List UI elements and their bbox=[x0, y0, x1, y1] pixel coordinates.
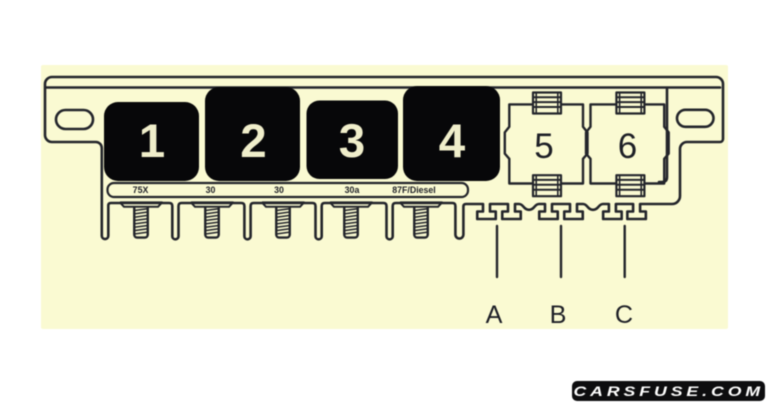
svg-text:30: 30 bbox=[206, 185, 216, 195]
svg-text:30: 30 bbox=[274, 185, 284, 195]
svg-text:75X: 75X bbox=[133, 185, 149, 195]
svg-text:C: C bbox=[615, 301, 633, 329]
svg-text:87F/Diesel: 87F/Diesel bbox=[392, 185, 436, 195]
svg-text:2: 2 bbox=[240, 115, 266, 168]
svg-text:3: 3 bbox=[339, 115, 365, 168]
svg-text:6: 6 bbox=[618, 127, 637, 166]
svg-text:1: 1 bbox=[139, 115, 165, 168]
svg-text:5: 5 bbox=[534, 127, 553, 166]
svg-text:30a: 30a bbox=[345, 185, 360, 195]
svg-text:A: A bbox=[486, 301, 503, 329]
svg-text:4: 4 bbox=[439, 115, 466, 168]
svg-text:B: B bbox=[550, 301, 567, 329]
